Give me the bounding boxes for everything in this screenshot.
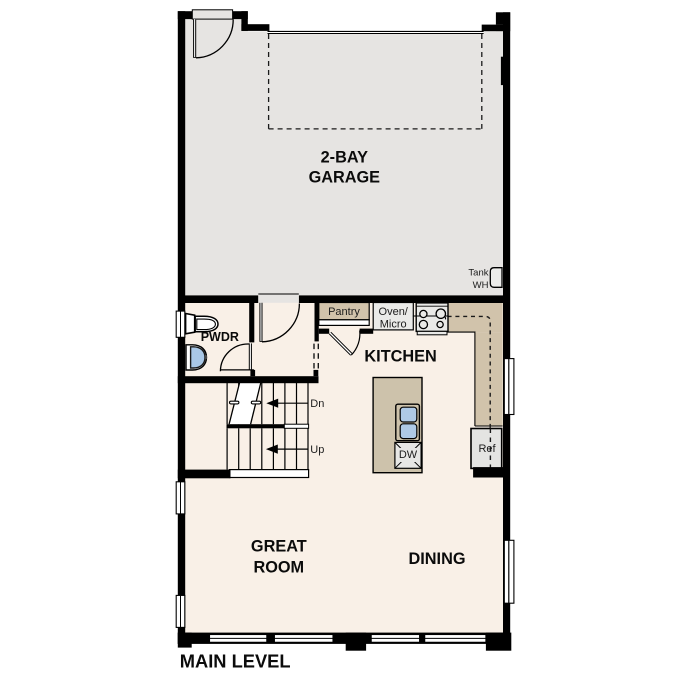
svg-text:GARAGE: GARAGE (309, 168, 381, 186)
svg-text:MAIN LEVEL: MAIN LEVEL (180, 651, 291, 672)
svg-text:DW: DW (399, 449, 418, 461)
svg-text:PWDR: PWDR (201, 330, 239, 344)
svg-text:Pantry: Pantry (328, 306, 360, 318)
svg-text:GREAT: GREAT (251, 538, 307, 556)
svg-text:Micro: Micro (380, 319, 407, 331)
svg-text:2-BAY: 2-BAY (321, 149, 368, 167)
svg-text:WH: WH (473, 280, 489, 291)
svg-text:DINING: DINING (409, 550, 466, 568)
svg-text:Tank: Tank (468, 268, 488, 279)
svg-text:Ref: Ref (478, 443, 496, 455)
svg-text:Dn: Dn (310, 398, 324, 410)
svg-text:KITCHEN: KITCHEN (364, 348, 436, 366)
svg-text:Oven/: Oven/ (379, 306, 409, 318)
svg-text:Up: Up (310, 444, 324, 456)
svg-text:ROOM: ROOM (253, 559, 304, 577)
